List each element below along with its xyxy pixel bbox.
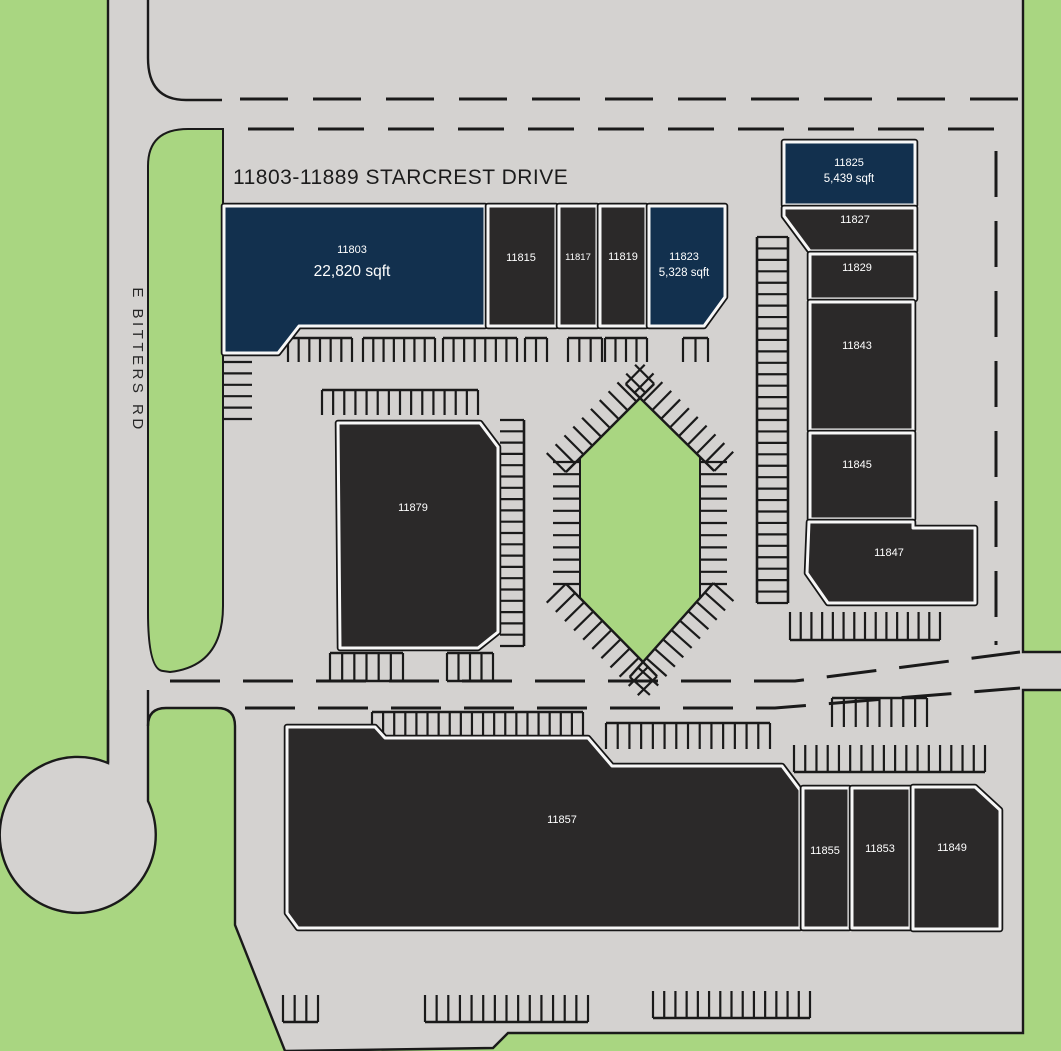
parking-stripe [582,418,601,437]
site-plan: 11803 22,820 sqft 11815 11817 11819 1182… [0,0,1061,1051]
parking-stripe [680,621,700,639]
green-right-top-strip [1023,0,1061,652]
parking-stripe [565,602,584,621]
building-label-sqft: 5,328 sqft [659,267,710,279]
building-label-number: 11823 [669,251,699,263]
building-label-number: 11819 [608,251,638,263]
road-label-e-bitters: E BITTERS RD [129,287,146,432]
site-plan-canvas: 11803 22,820 sqft 11815 11817 11819 1182… [0,0,1061,1051]
parking-stripe [713,583,733,601]
parking-stripe [610,649,629,668]
parking-stripe [556,593,575,612]
parking-stripe [592,630,611,649]
building-11819[interactable]: 11819 [600,206,646,326]
intersection-corner-curb [148,0,222,100]
building-11855[interactable]: 11855 [803,788,849,928]
parking-stripe [620,658,639,677]
parking-stripe [583,621,602,640]
building-label-number: 11827 [840,214,870,226]
parking-stripe [688,426,707,445]
building-11857[interactable]: 11857 [287,727,800,928]
parking-stripe [609,391,628,410]
building-11815[interactable]: 11815 [488,206,556,326]
parking-stripe [556,444,575,463]
parking-stripe [661,400,680,419]
parking-stripe [652,391,671,410]
parking-stripe [574,611,593,630]
parking-stripe [547,584,566,603]
building-11803[interactable]: 11803 22,820 sqft [224,206,485,353]
building-11829[interactable]: 11829 [810,254,915,299]
parking-stripe [670,408,689,427]
building-label-number: 11825 [834,157,864,169]
lane-line-middle-road-upper [170,652,1020,681]
building-label-number: 11829 [842,262,872,274]
building-label-number: 11815 [506,252,536,264]
building-11825[interactable]: 11825 5,439 sqft [784,142,915,205]
building-11849[interactable]: 11849 [913,787,1000,929]
building-11845[interactable]: 11845 [810,433,913,519]
parking-stripe [697,434,716,453]
building-11843[interactable]: 11843 [810,302,913,430]
building-11817[interactable]: 11817 [559,206,597,326]
parking-stripe [635,373,654,392]
parking-stripe [591,409,610,428]
parking-stripe [655,649,675,667]
building-label-sqft: 5,439 sqft [824,173,875,185]
green-median [148,129,223,672]
building-11827[interactable]: 11827 [784,208,915,251]
building-label-number: 11849 [937,842,967,854]
building-11823[interactable]: 11823 5,328 sqft [649,206,725,326]
building-label-number: 11817 [565,252,591,263]
parking-stripe [600,400,619,419]
building-11879[interactable]: 11879 [338,423,498,648]
building-label-number: 11855 [810,845,840,857]
building-label-number: 11803 [337,244,367,256]
building-label-number: 11843 [842,340,872,352]
building-label-number: 11857 [547,814,577,826]
parking-stripe [688,611,708,629]
parking-stripe [672,630,692,648]
parking-stripe [573,427,592,446]
parking-stripe [679,417,698,436]
parking-stripe [564,435,583,454]
parking-stripe [663,639,683,657]
parking-stripe [705,443,724,462]
building-label-sqft: 22,820 sqft [314,263,391,280]
parking-stripe [705,592,725,610]
building-label-number: 11847 [874,547,904,559]
building-11847[interactable]: 11847 [807,522,975,603]
building-label-number: 11853 [865,843,895,855]
building-label-number: 11879 [398,502,428,514]
building-11853[interactable]: 11853 [852,788,910,928]
page-title: 11803-11889 STARCREST DRIVE [233,166,568,189]
parking-stripe [601,639,620,658]
building-label-number: 11845 [842,459,872,471]
parking-stripe [697,602,717,620]
